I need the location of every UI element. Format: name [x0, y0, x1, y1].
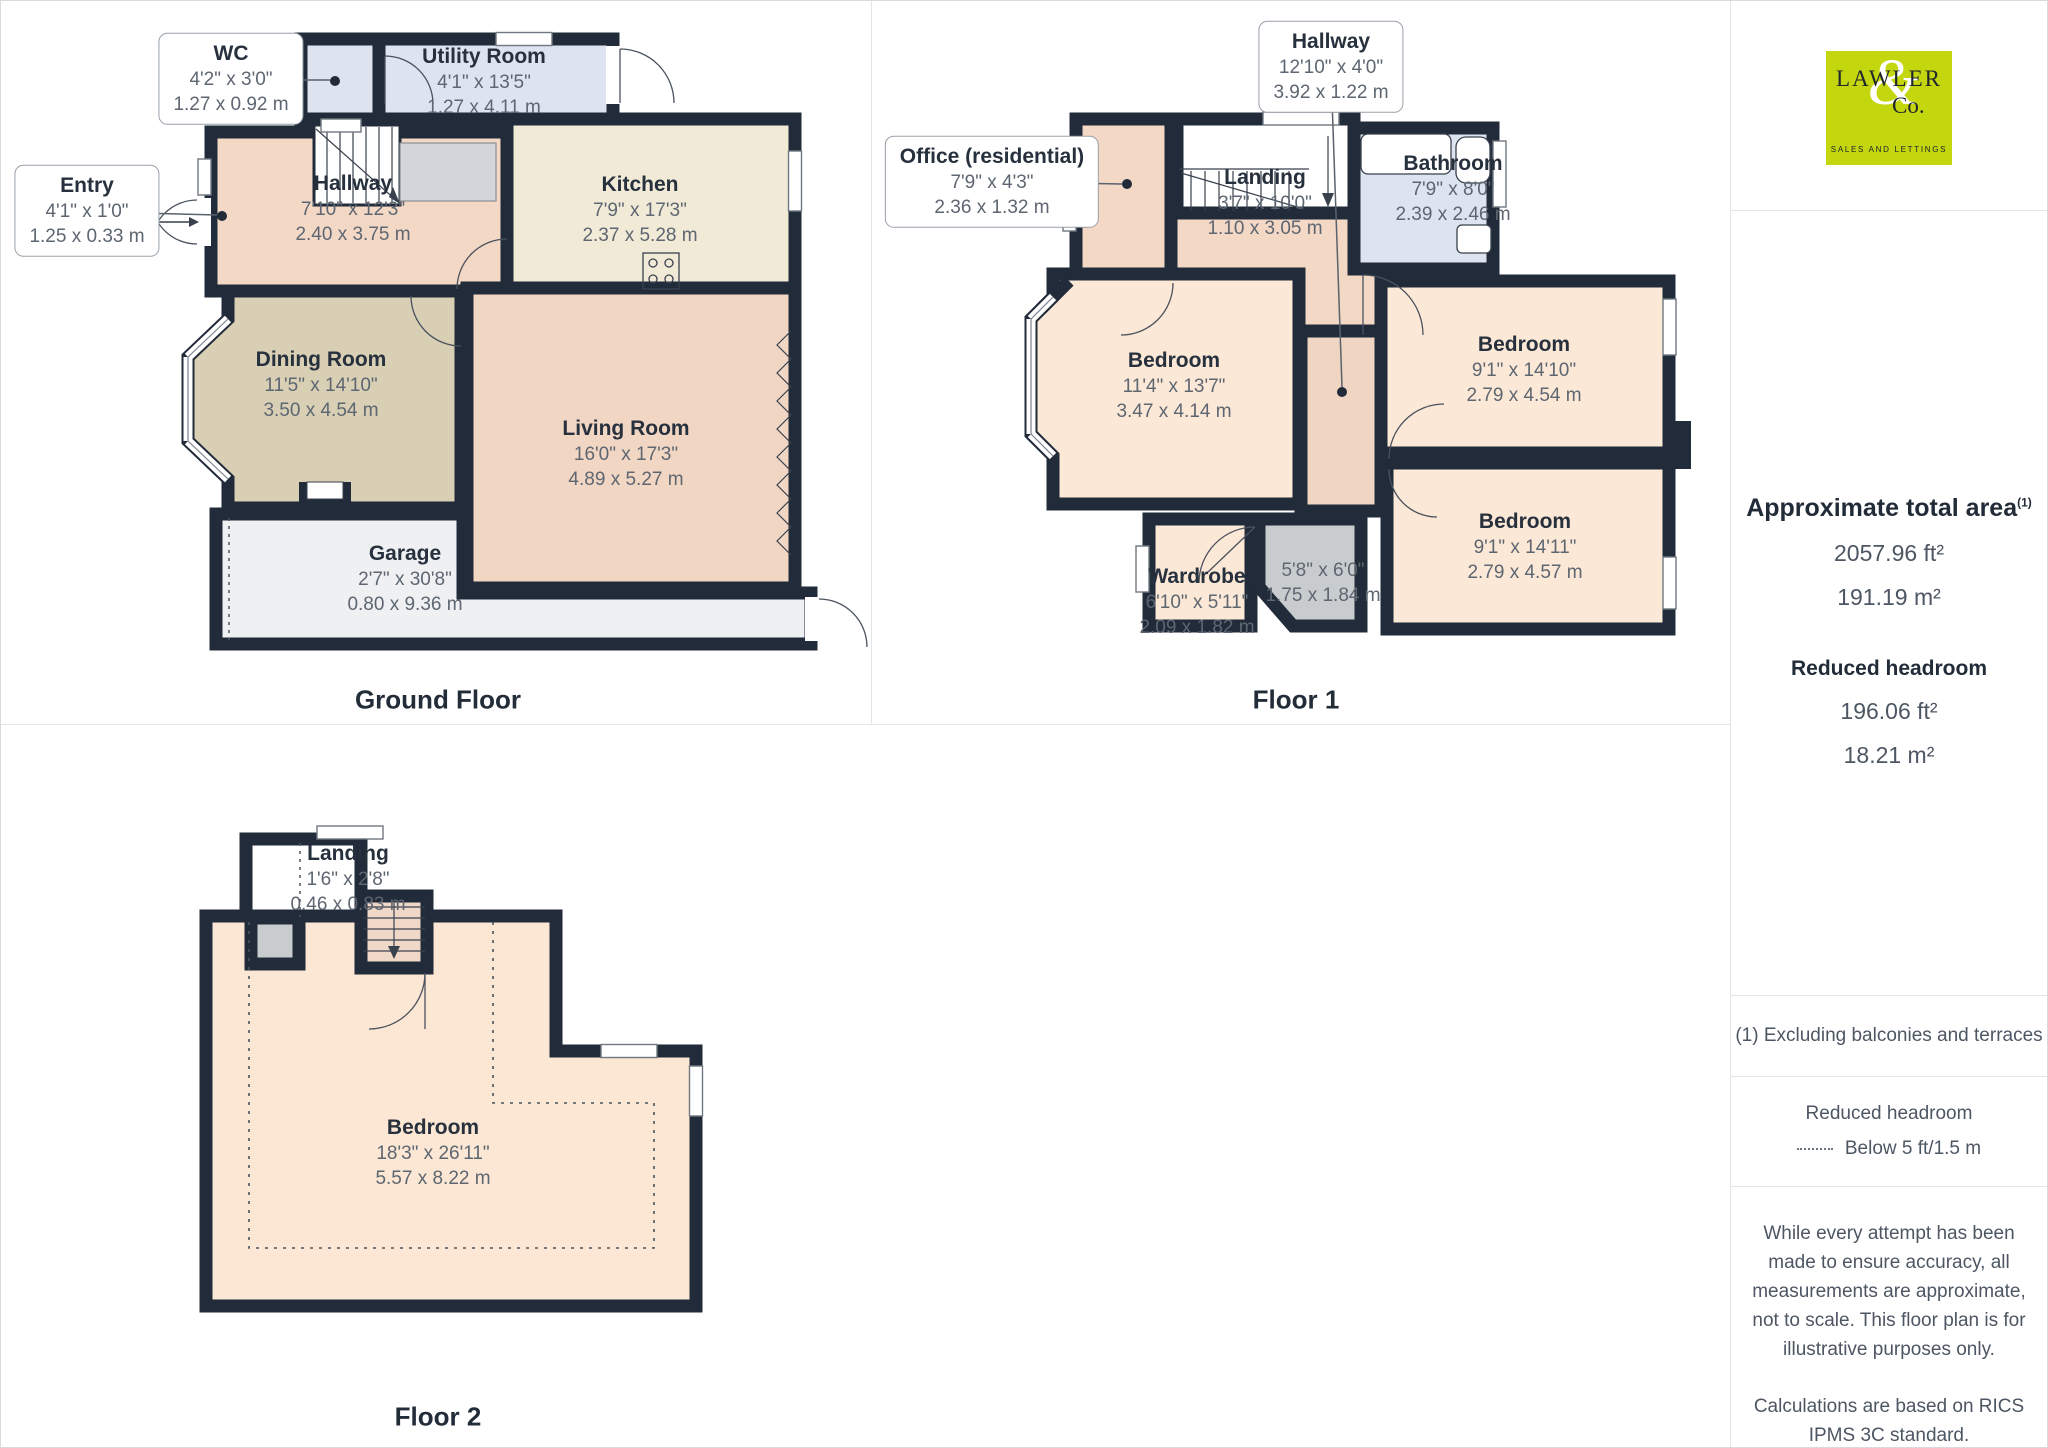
divider-vertical	[871, 1, 872, 724]
room-label-garage: Garage 2'7" x 30'8" 0.80 x 9.36 m	[347, 541, 462, 617]
legend-title: Reduced headroom	[1731, 1103, 2047, 1125]
room-wc	[301, 39, 379, 119]
footnote-marker: (1)	[2017, 496, 2032, 510]
total-area-panel: Approximate total area(1) 2057.96 ft² 19…	[1731, 211, 2047, 996]
room-label-bedroom-3: Bedroom 9'1" x 14'11" 2.79 x 4.57 m	[1467, 509, 1582, 585]
reduced-headroom-title: Reduced headroom	[1731, 657, 2047, 681]
room-label-entry: Entry 4'1" x 1'0" 1.25 x 0.33 m	[14, 165, 159, 257]
logo-section: & LAWLER Co. SALES AND LETTINGS	[1731, 1, 2047, 211]
sidebar: & LAWLER Co. SALES AND LETTINGS Approxim…	[1730, 1, 2047, 1447]
closet-f2	[251, 918, 299, 964]
legend-row: Below 5 ft/1.5 m	[1731, 1138, 2047, 1160]
entry-arrow-icon	[155, 217, 199, 227]
leader-dot-office	[1122, 179, 1132, 189]
footnote-text: (1) Excluding balconies and terraces	[1735, 1025, 2042, 1047]
dotted-line-swatch	[1797, 1148, 1833, 1150]
divider-horizontal	[1, 724, 1730, 725]
reduced-headroom-ft: 196.06 ft²	[1731, 698, 2047, 725]
fireplace-icon	[299, 482, 351, 508]
disclaimer-text-2: Calculations are based on RICS IPMS 3C s…	[1748, 1392, 2030, 1448]
reduced-headroom-m: 18.21 m²	[1731, 742, 2047, 769]
total-area-m: 191.19 m²	[1731, 584, 2047, 611]
chimney-f1	[1669, 421, 1691, 469]
logo-word2: Co.	[1892, 93, 1925, 119]
total-area-title: Approximate total area(1)	[1731, 211, 2047, 523]
logo-tagline: SALES AND LETTINGS	[1826, 145, 1952, 154]
agency-logo: & LAWLER Co. SALES AND LETTINGS	[1826, 51, 1952, 165]
floor-title-1: Floor 1	[1253, 685, 1340, 716]
room-label-bathroom: Bathroom 7'9" x 8'0" 2.39 x 2.46 m	[1395, 151, 1510, 227]
toilet-icon	[1457, 225, 1491, 253]
room-label-dining: Dining Room 11'5" x 14'10" 3.50 x 4.54 m	[256, 347, 387, 423]
room-label-landing-f2: Landing 1'6" x 2'8" 0.46 x 0.83 m	[290, 841, 405, 917]
room-label-hallway-ground: Hallway 7'10" x 12'3" 2.40 x 3.75 m	[295, 171, 410, 247]
disclaimer-section: While every attempt has been made to ens…	[1731, 1187, 2047, 1447]
room-label-living: Living Room 16'0" x 17'3" 4.89 x 5.27 m	[562, 416, 689, 492]
room-label-bedroom-f2: Bedroom 18'3" x 26'11" 5.57 x 8.22 m	[375, 1115, 490, 1191]
disclaimer-text-1: While every attempt has been made to ens…	[1748, 1219, 2030, 1364]
floor-2-plan	[206, 826, 703, 1306]
room-label-kitchen: Kitchen 7'9" x 17'3" 2.37 x 5.28 m	[582, 172, 697, 248]
leader-dot-entry	[217, 211, 227, 221]
room-label-bedroom-2: Bedroom 9'1" x 14'10" 2.79 x 4.54 m	[1466, 332, 1581, 408]
room-label-landing-f1: Landing 3'7" x 10'0" 1.10 x 3.05 m	[1207, 165, 1322, 241]
room-label-wc: WC 4'2" x 3'0" 1.27 x 0.92 m	[158, 33, 303, 125]
hall-closet	[400, 143, 496, 201]
floor-title-ground: Ground Floor	[355, 685, 521, 716]
footnote-section: (1) Excluding balconies and terraces	[1731, 996, 2047, 1077]
total-area-ft: 2057.96 ft²	[1731, 540, 2047, 567]
legend-section: Reduced headroom Below 5 ft/1.5 m	[1731, 1077, 2047, 1187]
room-label-small-gray: 5'8" x 6'0" 1.75 x 1.84 m	[1265, 558, 1380, 608]
logo-word: LAWLER	[1826, 66, 1952, 92]
leader-dot-wc	[330, 76, 340, 86]
legend-label: Below 5 ft/1.5 m	[1845, 1138, 1981, 1159]
room-label-utility: Utility Room 4'1" x 13'5" 1.27 x 4.11 m	[422, 44, 546, 120]
room-bedroom-f2	[206, 916, 696, 1306]
room-label-bedroom-1: Bedroom 11'4" x 13'7" 3.47 x 4.14 m	[1116, 348, 1231, 424]
room-label-wardrobe: Wardrobe 6'10" x 5'11" 2.09 x 1.82 m	[1139, 564, 1254, 640]
room-label-hallway-f1: Hallway 12'10" x 4'0" 3.92 x 1.22 m	[1258, 21, 1403, 113]
leader-dot-hallway-f1	[1337, 387, 1347, 397]
room-label-office: Office (residential) 7'9" x 4'3" 2.36 x …	[885, 136, 1099, 228]
floor-title-2: Floor 2	[395, 1402, 482, 1433]
floorplan-page: WC 4'2" x 3'0" 1.27 x 0.92 m Utility Roo…	[0, 0, 2048, 1448]
